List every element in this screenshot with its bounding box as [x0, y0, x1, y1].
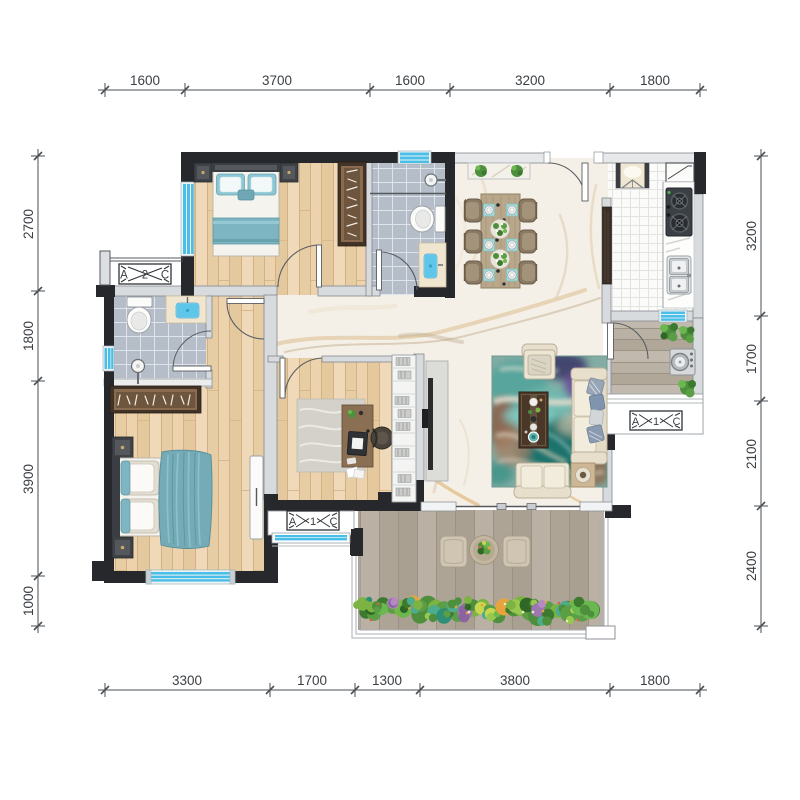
- svg-text:1800: 1800: [21, 321, 36, 351]
- svg-text:1700: 1700: [744, 344, 759, 374]
- svg-text:3200: 3200: [744, 221, 759, 251]
- svg-text:2400: 2400: [744, 551, 759, 581]
- svg-text:2: 2: [142, 270, 148, 282]
- svg-text:1600: 1600: [395, 73, 425, 88]
- svg-text:3800: 3800: [500, 673, 530, 688]
- svg-text:1800: 1800: [640, 673, 670, 688]
- svg-text:3700: 3700: [262, 73, 292, 88]
- svg-text:A: A: [120, 270, 128, 282]
- svg-text:1: 1: [310, 516, 316, 528]
- svg-text:2700: 2700: [21, 209, 36, 239]
- svg-text:3900: 3900: [21, 464, 36, 494]
- svg-text:2100: 2100: [744, 439, 759, 469]
- svg-text:A: A: [632, 416, 640, 428]
- svg-text:3200: 3200: [515, 73, 545, 88]
- svg-text:C: C: [673, 416, 681, 428]
- svg-text:1800: 1800: [640, 73, 670, 88]
- svg-text:1700: 1700: [297, 673, 327, 688]
- svg-text:C: C: [161, 270, 169, 282]
- svg-text:3300: 3300: [172, 673, 202, 688]
- svg-text:1300: 1300: [372, 673, 402, 688]
- svg-text:1600: 1600: [130, 73, 160, 88]
- svg-text:A: A: [289, 516, 297, 528]
- svg-text:1: 1: [653, 416, 659, 428]
- svg-text:C: C: [330, 516, 338, 528]
- svg-text:1000: 1000: [21, 586, 36, 616]
